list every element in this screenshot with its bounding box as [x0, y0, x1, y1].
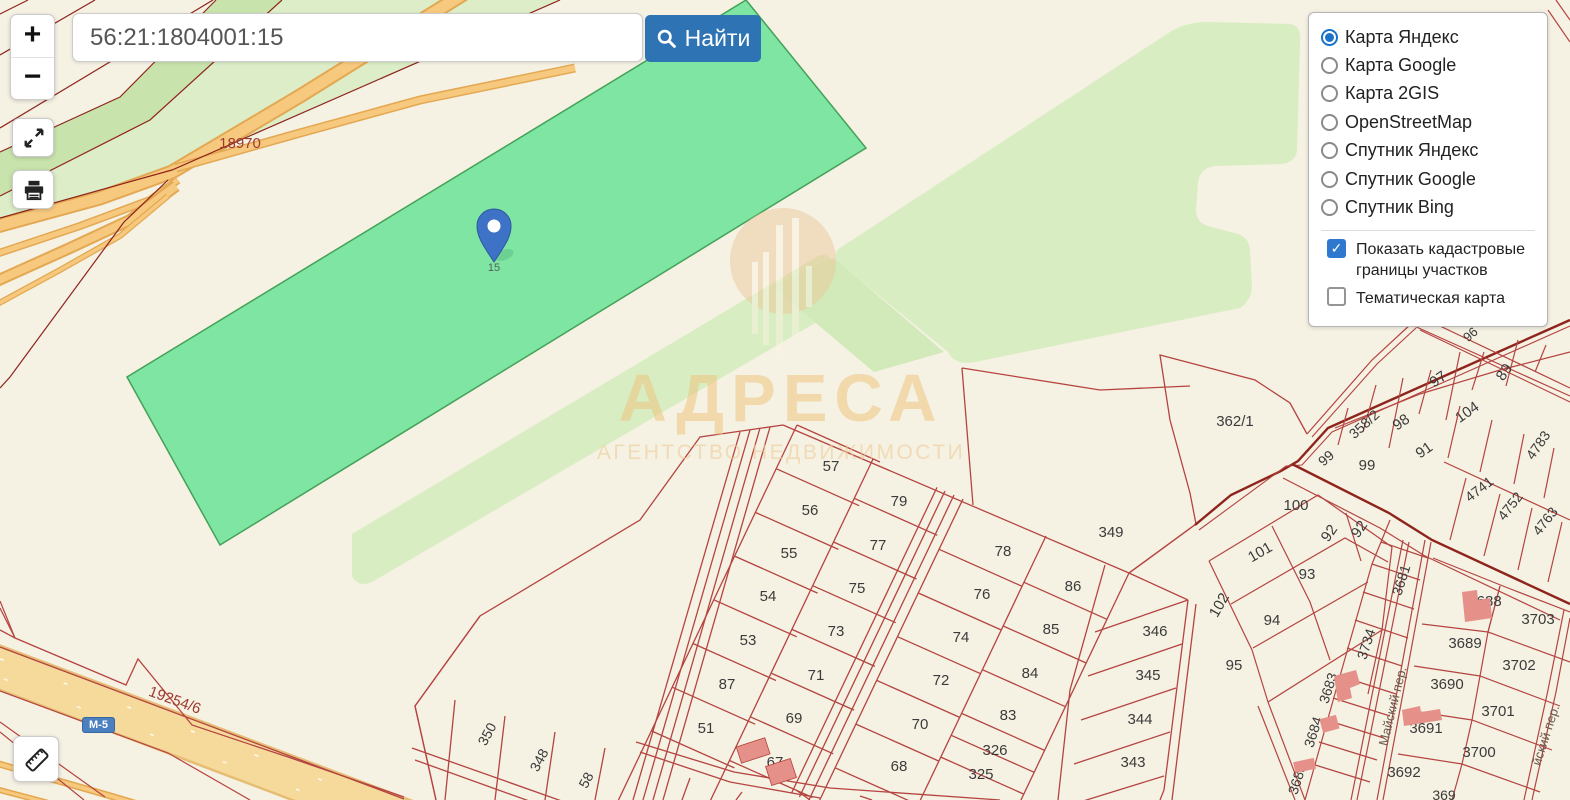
svg-text:83: 83 — [1000, 707, 1017, 724]
svg-text:74: 74 — [953, 629, 970, 646]
svg-text:55: 55 — [781, 545, 798, 562]
svg-text:АДРЕСА: АДРЕСА — [618, 361, 943, 436]
svg-text:3702: 3702 — [1502, 657, 1535, 674]
svg-text:79: 79 — [891, 493, 908, 510]
svg-text:54: 54 — [760, 588, 777, 605]
svg-text:69: 69 — [786, 710, 803, 727]
svg-text:78: 78 — [995, 543, 1012, 560]
svg-text:56: 56 — [802, 502, 819, 519]
svg-text:346: 346 — [1142, 623, 1167, 640]
svg-text:3700: 3700 — [1462, 744, 1495, 761]
svg-text:85: 85 — [1043, 621, 1060, 638]
svg-text:77: 77 — [870, 537, 887, 554]
svg-text:345: 345 — [1135, 667, 1160, 684]
svg-text:51: 51 — [698, 720, 715, 737]
svg-text:72: 72 — [933, 672, 950, 689]
svg-text:369: 369 — [1432, 787, 1456, 800]
svg-text:84: 84 — [1022, 665, 1039, 682]
svg-text:86: 86 — [1065, 578, 1082, 595]
svg-text:53: 53 — [740, 632, 757, 649]
svg-text:349: 349 — [1098, 524, 1123, 541]
svg-text:93: 93 — [1299, 566, 1316, 583]
svg-text:3690: 3690 — [1430, 676, 1463, 693]
svg-text:76: 76 — [974, 586, 991, 603]
svg-text:94: 94 — [1264, 612, 1281, 629]
svg-text:68: 68 — [891, 758, 908, 775]
svg-text:3701: 3701 — [1481, 703, 1514, 720]
svg-text:70: 70 — [912, 716, 929, 733]
svg-text:362/1: 362/1 — [1216, 413, 1254, 430]
svg-text:95: 95 — [1226, 657, 1243, 674]
svg-text:326: 326 — [982, 742, 1007, 759]
svg-text:3703: 3703 — [1521, 611, 1554, 628]
svg-text:87: 87 — [719, 676, 736, 693]
svg-text:15: 15 — [488, 262, 500, 274]
svg-text:71: 71 — [808, 667, 825, 684]
svg-text:99: 99 — [1359, 457, 1376, 474]
svg-text:73: 73 — [828, 623, 845, 640]
svg-text:75: 75 — [849, 580, 866, 597]
svg-text:18970: 18970 — [219, 135, 261, 152]
svg-text:АГЕНТСТВО НЕДВИЖИМОСТИ: АГЕНТСТВО НЕДВИЖИМОСТИ — [597, 441, 965, 464]
svg-text:325: 325 — [968, 766, 993, 783]
svg-text:344: 344 — [1127, 711, 1152, 728]
svg-text:343: 343 — [1120, 754, 1145, 771]
svg-text:3692: 3692 — [1387, 764, 1420, 781]
svg-text:100: 100 — [1283, 497, 1308, 514]
svg-text:3689: 3689 — [1448, 635, 1481, 652]
